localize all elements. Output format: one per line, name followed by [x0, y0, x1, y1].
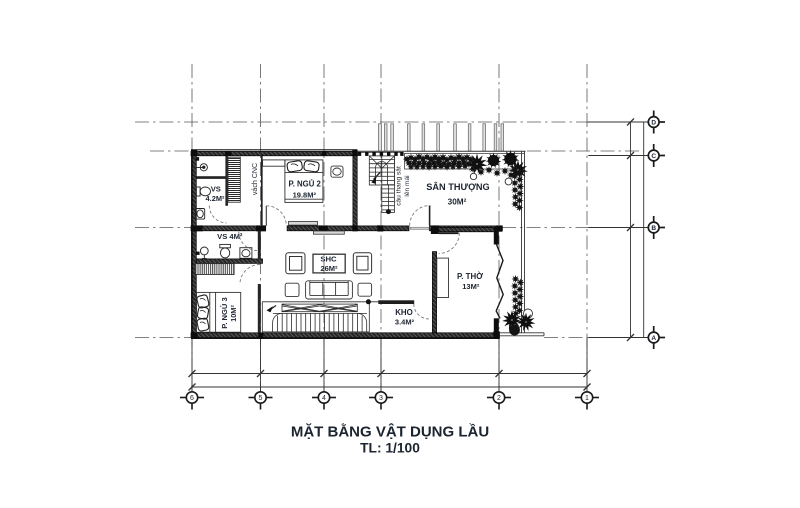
svg-text:26M²: 26M² — [320, 264, 338, 273]
svg-text:3: 3 — [379, 395, 383, 402]
svg-text:TL: 1/100: TL: 1/100 — [360, 441, 420, 456]
svg-text:lên mái: lên mái — [404, 175, 411, 197]
svg-text:KHO: KHO — [395, 308, 413, 317]
svg-text:P. NGỦ 2: P. NGỦ 2 — [289, 179, 322, 188]
svg-text:10M²: 10M² — [229, 305, 238, 322]
svg-text:4: 4 — [322, 395, 326, 402]
svg-text:D: D — [651, 119, 656, 126]
svg-text:P. THỜ: P. THỜ — [457, 272, 483, 281]
svg-text:cầu thang sắt: cầu thang sắt — [394, 166, 403, 206]
svg-text:6: 6 — [190, 395, 194, 402]
svg-text:P. NGỦ 3: P. NGỦ 3 — [220, 297, 229, 329]
svg-text:MẶT BẰNG VẬT DỤNG LẦU: MẶT BẰNG VẬT DỤNG LẦU — [291, 423, 489, 441]
svg-text:30M²: 30M² — [448, 197, 467, 206]
svg-text:A: A — [651, 335, 656, 342]
svg-text:SÂN THƯỢNG: SÂN THƯỢNG — [426, 181, 489, 192]
svg-text:3.4M²: 3.4M² — [395, 317, 415, 326]
svg-text:vách CNC: vách CNC — [251, 163, 259, 195]
svg-text:1: 1 — [585, 395, 589, 402]
svg-text:VS: VS — [211, 185, 221, 194]
svg-text:5: 5 — [259, 395, 263, 402]
svg-text:4.2M²: 4.2M² — [206, 194, 225, 203]
svg-text:2: 2 — [497, 395, 501, 402]
svg-text:SHC: SHC — [320, 255, 337, 264]
svg-text:13M²: 13M² — [462, 282, 480, 291]
svg-text:19.8M²: 19.8M² — [293, 190, 317, 199]
svg-text:C: C — [651, 153, 656, 160]
svg-text:B: B — [651, 225, 656, 232]
